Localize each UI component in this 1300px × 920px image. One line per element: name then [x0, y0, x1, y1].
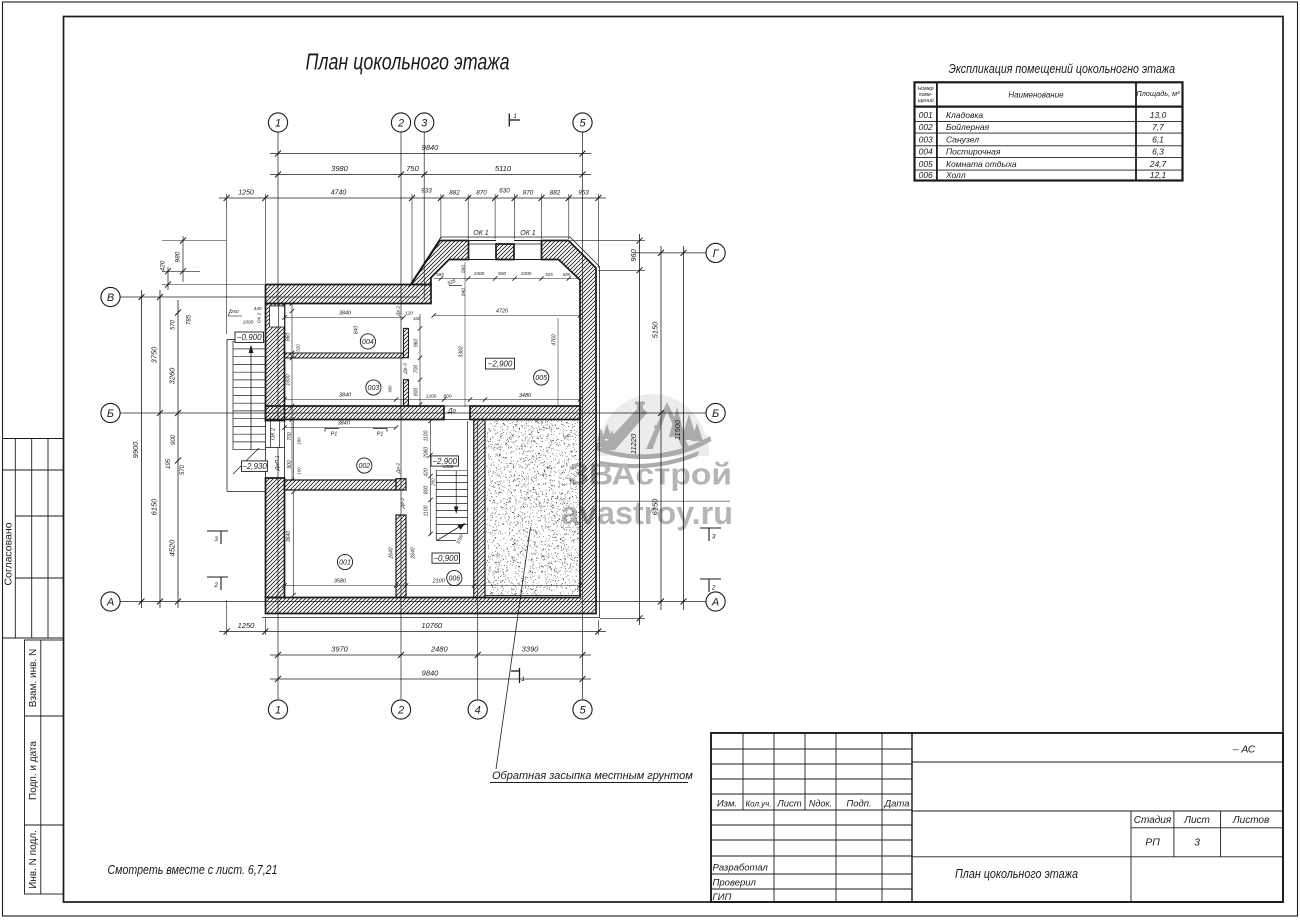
svg-text:800: 800 — [424, 486, 430, 495]
svg-text:2: 2 — [711, 585, 716, 592]
svg-text:160: 160 — [413, 316, 421, 321]
svg-text:001: 001 — [339, 560, 351, 567]
svg-text:Подп.: Подп. — [846, 799, 871, 810]
svg-text:585: 585 — [563, 272, 571, 277]
svg-text:6,1: 6,1 — [1152, 134, 1164, 144]
svg-text:Лист: Лист — [1183, 815, 1210, 826]
svg-text:630: 630 — [499, 188, 510, 195]
svg-text:120: 120 — [405, 311, 413, 316]
svg-text:001: 001 — [919, 110, 933, 120]
svg-text:860: 860 — [286, 333, 292, 342]
svg-text:003: 003 — [368, 385, 380, 392]
svg-text:ОК 1: ОК 1 — [520, 230, 536, 237]
svg-text:1200: 1200 — [426, 394, 437, 400]
svg-text:420: 420 — [160, 260, 167, 271]
svg-text:840: 840 — [461, 288, 467, 296]
svg-text:1: 1 — [275, 118, 281, 130]
svg-text:РП: РП — [1145, 837, 1160, 849]
svg-text:882: 882 — [449, 190, 460, 197]
svg-text:5110: 5110 — [495, 164, 512, 173]
svg-text:2060: 2060 — [424, 447, 430, 459]
svg-text:Г: Г — [713, 248, 720, 260]
svg-text:560: 560 — [461, 265, 467, 273]
svg-text:3750: 3750 — [150, 346, 159, 364]
svg-text:3580: 3580 — [334, 579, 347, 585]
svg-text:3260: 3260 — [168, 367, 177, 385]
svg-text:3: 3 — [712, 534, 716, 541]
svg-text:420: 420 — [424, 468, 430, 477]
svg-text:3: 3 — [421, 118, 428, 130]
svg-text:Бойлерная: Бойлерная — [946, 122, 990, 132]
svg-text:Экспликация помещений цокольно: Экспликация помещений цокольногно этажа — [949, 62, 1176, 76]
svg-text:План цокольного этажа: План цокольного этажа — [306, 49, 510, 75]
svg-text:440: 440 — [254, 306, 262, 312]
svg-text:4720: 4720 — [496, 309, 509, 315]
svg-text:1000: 1000 — [243, 320, 254, 326]
svg-text:002: 002 — [358, 463, 370, 470]
svg-text:585: 585 — [436, 272, 444, 277]
svg-text:Б: Б — [107, 408, 114, 420]
svg-text:250: 250 — [431, 478, 436, 487]
svg-text:4: 4 — [475, 705, 481, 717]
svg-text:План цокольного этажа: План цокольного этажа — [955, 867, 1078, 881]
svg-text:180: 180 — [297, 437, 302, 445]
svg-text:003: 003 — [919, 134, 933, 144]
svg-text:6150: 6150 — [150, 498, 159, 516]
svg-text:4520: 4520 — [168, 539, 177, 557]
svg-text:6150: 6150 — [651, 498, 660, 516]
svg-text:6,3: 6,3 — [1152, 147, 1164, 157]
svg-text:10760: 10760 — [421, 621, 443, 630]
svg-text:840: 840 — [354, 326, 360, 335]
svg-text:3840: 3840 — [339, 311, 352, 317]
svg-text:3640: 3640 — [286, 531, 292, 542]
svg-text:ОК 1: ОК 1 — [473, 230, 489, 237]
svg-text:1: 1 — [521, 676, 525, 683]
svg-text:7,7: 7,7 — [1152, 122, 1164, 132]
svg-text:24,7: 24,7 — [1149, 159, 1167, 169]
svg-text:−2,900: −2,900 — [488, 360, 513, 369]
svg-text:Дата: Дата — [883, 799, 909, 810]
svg-text:953: 953 — [578, 190, 589, 197]
svg-text:900: 900 — [388, 385, 393, 393]
svg-text:9840: 9840 — [422, 669, 440, 678]
svg-text:1000: 1000 — [521, 271, 532, 277]
svg-text:9840: 9840 — [422, 143, 440, 152]
svg-text:А: А — [711, 597, 719, 609]
svg-text:006: 006 — [448, 576, 460, 583]
svg-text:Инв. N подл.: Инв. N подл. — [28, 830, 39, 889]
svg-text:195: 195 — [166, 458, 172, 469]
svg-text:006: 006 — [919, 170, 933, 180]
svg-text:2480: 2480 — [430, 645, 449, 654]
svg-text:1: 1 — [275, 705, 281, 717]
svg-text:Стадия: Стадия — [1134, 815, 1172, 826]
svg-text:5: 5 — [579, 705, 586, 717]
svg-text:3390: 3390 — [522, 645, 540, 654]
svg-text:3: 3 — [1194, 837, 1200, 849]
svg-text:9900: 9900 — [131, 441, 140, 459]
svg-text:1100: 1100 — [424, 505, 430, 516]
svg-text:900: 900 — [287, 460, 293, 469]
svg-text:800: 800 — [443, 394, 451, 400]
svg-text:004: 004 — [362, 339, 374, 346]
svg-text:11500: 11500 — [673, 419, 682, 440]
svg-text:Холл: Холл — [945, 170, 966, 180]
svg-text:11220: 11220 — [629, 433, 638, 454]
svg-text:1100: 1100 — [424, 430, 430, 441]
svg-text:005: 005 — [535, 375, 547, 382]
svg-text:Р1: Р1 — [377, 432, 384, 438]
svg-text:Разработал: Разработал — [713, 863, 769, 874]
svg-text:3: 3 — [214, 536, 218, 543]
svg-text:Санузел: Санузел — [946, 134, 979, 144]
svg-text:Кладовка: Кладовка — [946, 110, 983, 120]
svg-text:900: 900 — [171, 434, 177, 445]
svg-text:Взам. инв. N: Взам. инв. N — [28, 649, 39, 707]
svg-text:До: До — [447, 409, 456, 415]
svg-text:800: 800 — [413, 388, 419, 397]
svg-text:2: 2 — [397, 705, 404, 717]
svg-text:А: А — [106, 597, 114, 609]
svg-text:3980: 3980 — [331, 164, 349, 173]
svg-text:4740: 4740 — [331, 190, 347, 197]
svg-text:Дв-2: Дв-2 — [396, 463, 402, 474]
svg-text:960: 960 — [629, 248, 638, 261]
svg-text:Листов: Листов — [1232, 815, 1269, 826]
svg-text:ОК 2: ОК 2 — [257, 312, 263, 323]
svg-text:Смотреть вместе с лист. 6,7,21: Смотреть вместе с лист. 6,7,21 — [108, 862, 278, 877]
svg-text:3360: 3360 — [459, 346, 465, 357]
svg-text:Б: Б — [712, 408, 719, 420]
svg-text:12,1: 12,1 — [1150, 170, 1167, 180]
svg-text:1250: 1250 — [238, 621, 256, 630]
svg-text:1250: 1250 — [238, 190, 254, 197]
svg-text:005: 005 — [919, 159, 933, 169]
svg-text:100: 100 — [297, 467, 302, 475]
svg-text:−0,900: −0,900 — [433, 554, 458, 563]
svg-text:13,0: 13,0 — [1150, 110, 1167, 120]
svg-text:−2,930: −2,930 — [242, 462, 267, 471]
svg-text:3480: 3480 — [519, 393, 532, 399]
svg-text:525: 525 — [545, 272, 553, 277]
svg-text:щений: щений — [918, 97, 934, 104]
svg-text:004: 004 — [919, 147, 933, 157]
svg-text:Обратная засыпка местным грунт: Обратная засыпка местным грунтом — [492, 770, 693, 782]
svg-text:882: 882 — [550, 190, 561, 197]
svg-text:5: 5 — [579, 118, 586, 130]
svg-text:ДмП 1: ДмП 1 — [275, 455, 281, 471]
svg-text:570: 570 — [171, 319, 177, 330]
svg-text:500: 500 — [498, 271, 506, 277]
svg-text:ГИП: ГИП — [713, 892, 732, 903]
svg-text:002: 002 — [919, 122, 933, 132]
svg-text:520: 520 — [296, 344, 301, 352]
svg-text:Лист: Лист — [776, 799, 802, 810]
svg-text:Изм.: Изм. — [717, 799, 737, 810]
svg-text:Подп. и дата: Подп. и дата — [28, 741, 39, 800]
svg-text:3840: 3840 — [339, 393, 352, 399]
svg-text:2640: 2640 — [411, 547, 417, 559]
svg-text:1600: 1600 — [286, 374, 292, 385]
svg-text:Де-3: Де-3 — [403, 363, 409, 375]
svg-text:2: 2 — [213, 582, 218, 589]
svg-text:870: 870 — [476, 190, 487, 197]
svg-text:960: 960 — [413, 339, 419, 348]
svg-text:2100: 2100 — [432, 579, 446, 585]
svg-text:Согласовано: Согласовано — [3, 522, 15, 585]
svg-text:570: 570 — [180, 464, 186, 475]
svg-text:1: 1 — [513, 113, 517, 120]
svg-text:1000: 1000 — [443, 464, 454, 470]
svg-text:3970: 3970 — [331, 645, 349, 654]
svg-text:933: 933 — [421, 188, 432, 195]
svg-text:785: 785 — [187, 314, 193, 325]
svg-text:В: В — [107, 292, 114, 304]
svg-text:−0,900: −0,900 — [237, 333, 262, 342]
svg-text:Комната отдыха: Комната отдыха — [946, 159, 1017, 169]
svg-text:Кол.уч.: Кол.уч. — [745, 800, 771, 809]
svg-text:ОК 2: ОК 2 — [271, 428, 277, 440]
svg-text:750: 750 — [406, 164, 419, 173]
svg-text:4760: 4760 — [552, 334, 558, 345]
svg-text:700: 700 — [287, 432, 293, 441]
svg-text:5150: 5150 — [651, 321, 660, 339]
svg-text:Nдок.: Nдок. — [809, 799, 832, 809]
svg-text:Р1: Р1 — [331, 432, 338, 438]
svg-text:Площадь, м²: Площадь, м² — [1136, 89, 1180, 98]
svg-text:– АС: – АС — [1232, 744, 1256, 756]
svg-text:3840: 3840 — [338, 421, 351, 427]
svg-text:1000: 1000 — [474, 271, 485, 277]
svg-text:2: 2 — [397, 118, 404, 130]
svg-text:Де-2: Де-2 — [400, 498, 406, 510]
svg-text:2640: 2640 — [389, 547, 395, 559]
svg-text:Дв 2: Дв 2 — [396, 306, 402, 317]
svg-text:700: 700 — [413, 365, 419, 374]
svg-text:980: 980 — [175, 251, 182, 262]
svg-text:Постирочная: Постирочная — [946, 147, 1001, 157]
svg-text:870: 870 — [523, 190, 534, 197]
svg-text:Наименование: Наименование — [1008, 91, 1064, 100]
svg-text:Проверил: Проверил — [713, 878, 757, 889]
